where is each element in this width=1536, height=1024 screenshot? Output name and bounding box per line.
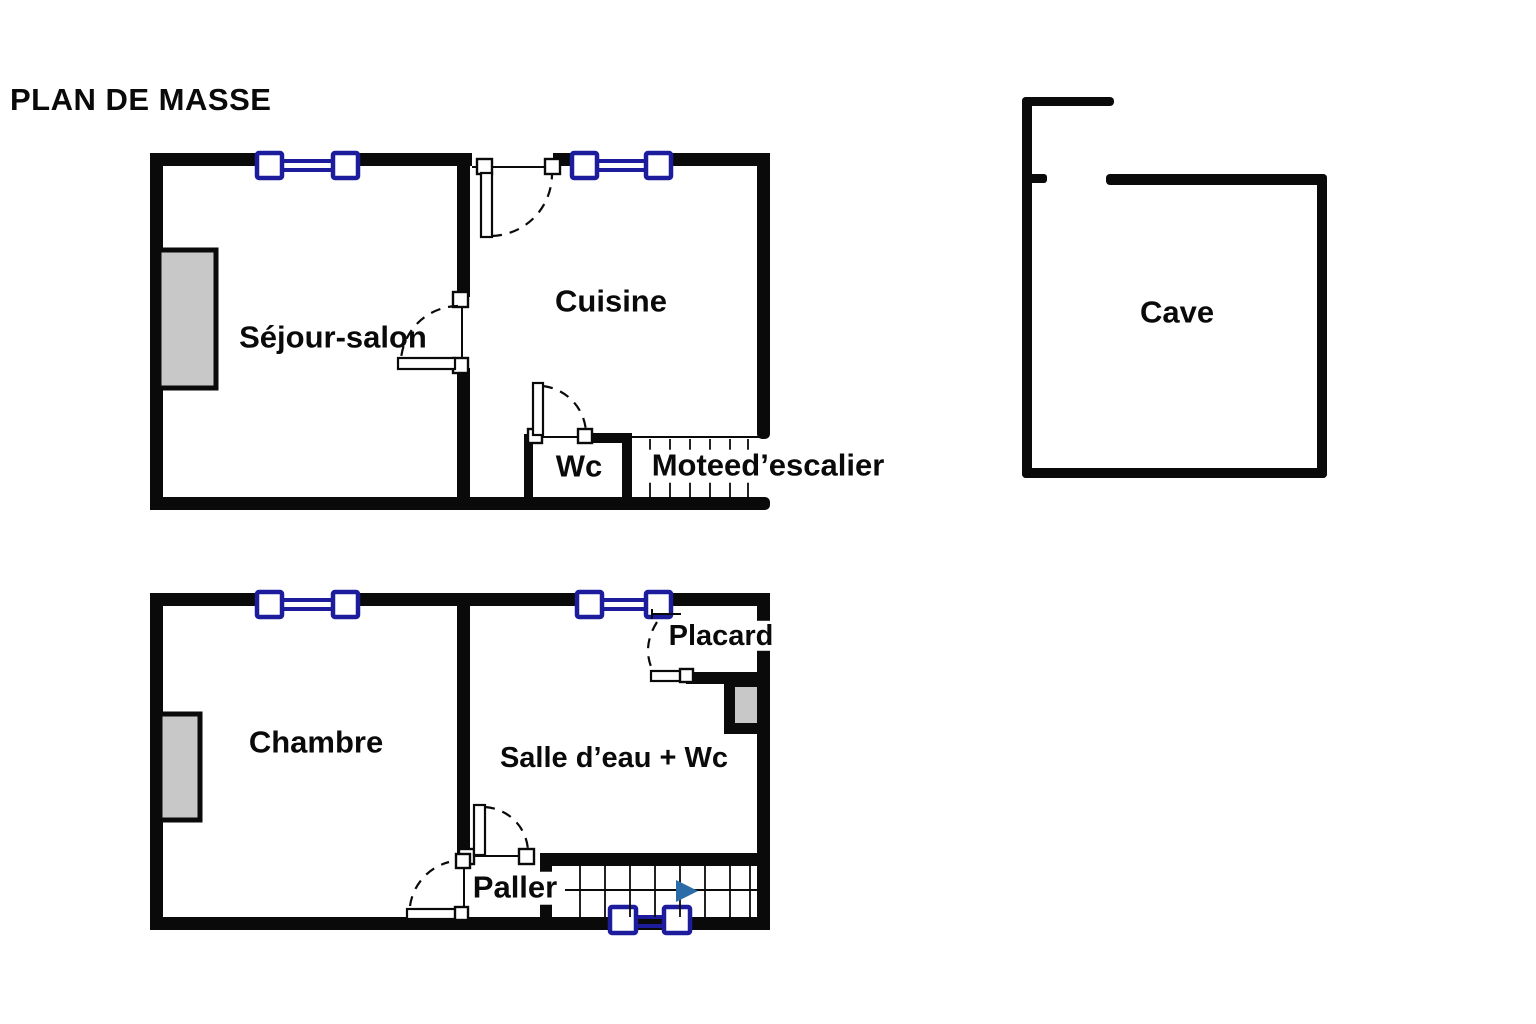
room-label-salle-eau: Salle d’eau + Wc [500,743,728,773]
door-swing-icon [472,159,560,237]
floor-plan-drawing [0,0,1536,1024]
room-label-sejour: Séjour-salon [239,322,427,355]
sejour-window-bay [159,250,216,388]
room-label-palier: Paller [470,872,560,905]
window-icon [257,153,358,178]
stair-direction-arrow-icon [676,880,698,902]
placard-duct [733,685,759,725]
chambre-window-bay [160,714,200,820]
window-icon [257,592,358,617]
door-swing-icon [407,854,470,920]
window-icon [572,153,671,178]
door-swing-icon [528,383,592,443]
floor-plan-page: PLAN DE MASSE [0,0,1536,1024]
room-label-placard: Placard [666,621,777,651]
room-label-stair: Moteed’escalier [649,450,888,483]
cave-plan [1022,97,1327,478]
room-label-wc: Wc [556,451,603,484]
room-label-chambre: Chambre [249,727,383,760]
room-label-cave: Cave [1140,297,1214,330]
cave-walls [1022,97,1327,478]
stairs [565,866,757,917]
room-label-cuisine: Cuisine [555,286,667,319]
